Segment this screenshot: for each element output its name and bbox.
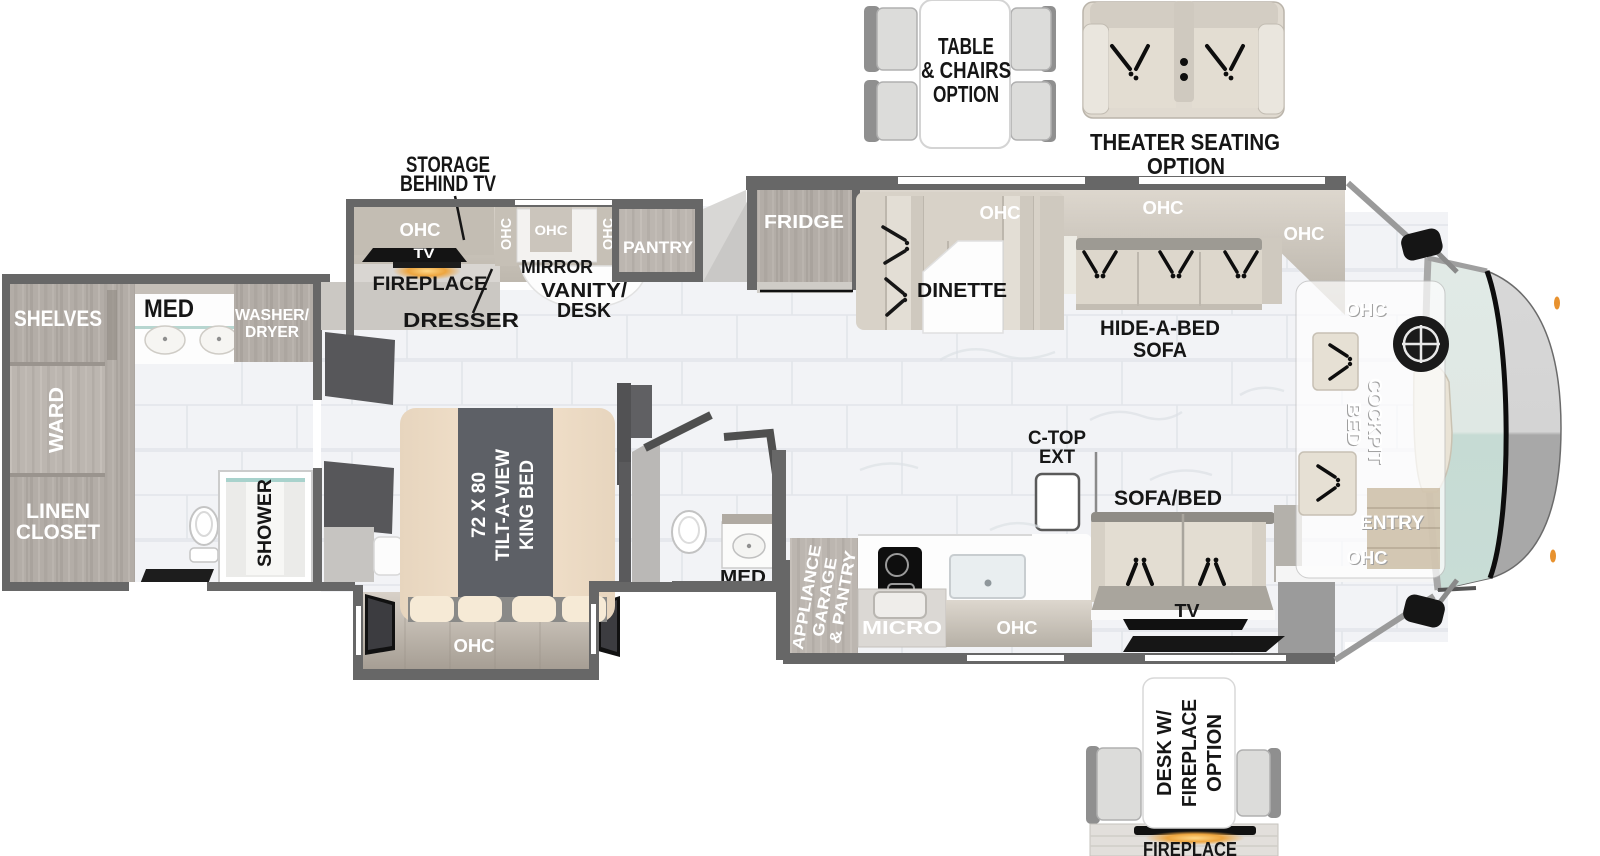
svg-text:TV: TV: [414, 245, 436, 261]
svg-text:OHC: OHC: [1346, 300, 1387, 320]
svg-text:DRYER: DRYER: [245, 324, 299, 341]
svg-text:WASHER/: WASHER/: [235, 307, 310, 324]
svg-text:MICRO: MICRO: [862, 618, 942, 638]
svg-text:DESK W/: DESK W/: [1154, 710, 1176, 796]
svg-text:OPTION: OPTION: [1147, 153, 1225, 179]
svg-text:C-TOP: C-TOP: [1028, 428, 1086, 449]
svg-text:DINETTE: DINETTE: [917, 280, 1007, 302]
svg-text:OHC: OHC: [980, 203, 1021, 223]
svg-text:OHC: OHC: [498, 218, 515, 250]
svg-text:TILT-A-VIEW: TILT-A-VIEW: [493, 449, 514, 561]
svg-text:PANTRY: PANTRY: [623, 238, 694, 257]
svg-text:SHOWER: SHOWER: [255, 479, 276, 567]
svg-text:FIREPLACE: FIREPLACE: [373, 274, 488, 295]
svg-text:OHC: OHC: [454, 636, 495, 656]
svg-text:SOFA/BED: SOFA/BED: [1114, 487, 1222, 510]
svg-text:OHC: OHC: [1347, 548, 1388, 568]
svg-text:VANITY/: VANITY/: [541, 280, 627, 302]
svg-text:SHELVES: SHELVES: [14, 306, 102, 331]
svg-text:ENTRY: ENTRY: [1360, 513, 1424, 534]
svg-text:EXT: EXT: [1039, 447, 1075, 468]
svg-text:FIREPLACE: FIREPLACE: [1143, 839, 1237, 856]
svg-text:MED: MED: [144, 295, 194, 323]
svg-text:MIRROR: MIRROR: [521, 257, 593, 277]
svg-text:OHC: OHC: [997, 618, 1038, 638]
svg-text:SOFA: SOFA: [1133, 339, 1187, 362]
svg-text:OHC: OHC: [1284, 224, 1325, 244]
svg-text:& CHAIRS: & CHAIRS: [921, 57, 1011, 83]
svg-text:BED: BED: [1344, 402, 1364, 446]
svg-text:COCKPIT: COCKPIT: [1365, 378, 1385, 464]
svg-text:OHC: OHC: [400, 220, 441, 240]
svg-text:72 X 80: 72 X 80: [469, 472, 490, 538]
svg-text:HIDE-A-BED: HIDE-A-BED: [1100, 317, 1220, 340]
svg-text:LINEN: LINEN: [26, 500, 90, 523]
svg-text:BEHIND TV: BEHIND TV: [400, 171, 496, 196]
svg-text:TV: TV: [1175, 601, 1200, 621]
svg-text:FIREPLACE: FIREPLACE: [1179, 699, 1201, 807]
svg-text:OPTION: OPTION: [933, 81, 999, 107]
svg-text:THEATER SEATING: THEATER SEATING: [1090, 129, 1280, 155]
svg-text:OHC: OHC: [535, 222, 568, 238]
svg-text:WARD: WARD: [46, 387, 68, 453]
svg-text:CLOSET: CLOSET: [16, 521, 100, 544]
svg-text:DRESSER: DRESSER: [403, 310, 520, 332]
svg-text:TABLE: TABLE: [938, 33, 994, 59]
svg-text:KING BED: KING BED: [517, 460, 538, 550]
svg-text:OHC: OHC: [1143, 198, 1184, 218]
svg-text:DESK: DESK: [557, 300, 612, 322]
svg-text:OPTION: OPTION: [1204, 714, 1226, 792]
svg-text:FRIDGE: FRIDGE: [764, 212, 844, 232]
